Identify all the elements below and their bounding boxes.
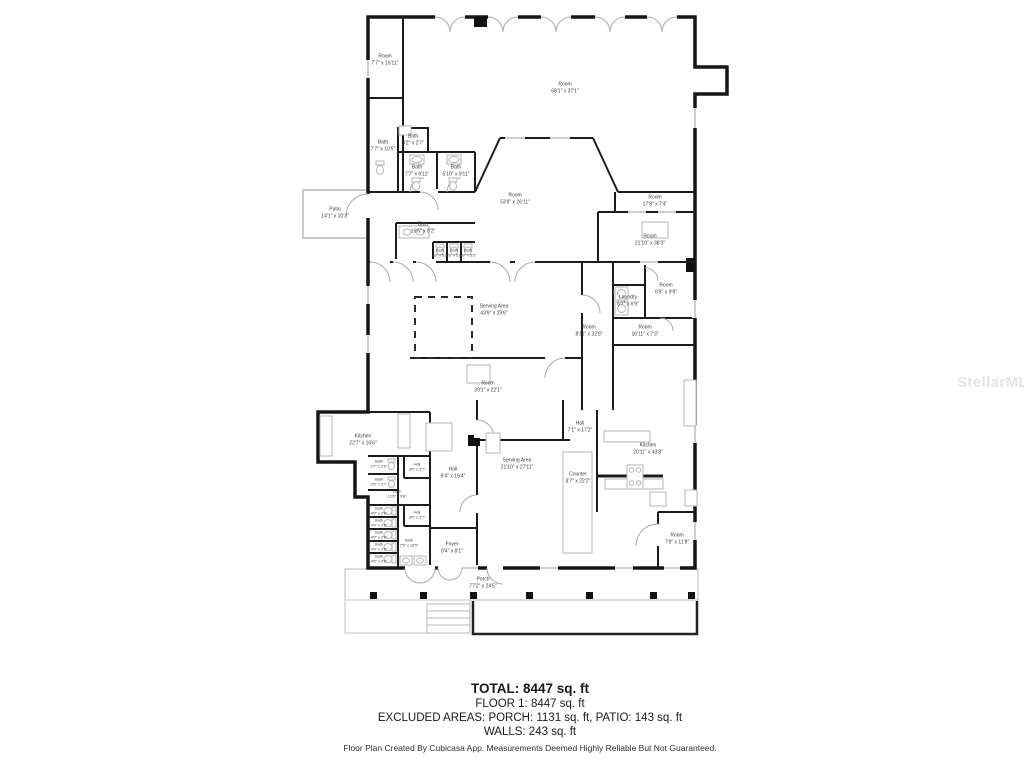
room-dimensions: 4'9" x 2'6": [371, 535, 388, 540]
room-label: Room17'8" x 7'4": [643, 195, 668, 208]
room-label: Bath7'7" x 9'11": [405, 165, 429, 178]
room-name: Serving Area: [501, 458, 534, 465]
room-dimensions: 8'7" x 22'2": [566, 478, 591, 485]
room-dimensions: 21'10" x 38'3": [635, 240, 665, 247]
room-label: Counter8'7" x 22'2": [566, 472, 591, 485]
room-dimensions: 21'10" x 27'11": [501, 464, 534, 471]
floorplan-page: Room7'7" x 16'11"Room68'1" x 37'1"Bath7'…: [0, 0, 1024, 768]
room-dimensions: 16'6" x 8'2": [411, 228, 436, 235]
room-dimensions: 4'9" x 2'6": [371, 547, 388, 552]
room-labels-layer: Room7'7" x 16'11"Room68'1" x 37'1"Bath7'…: [0, 0, 1024, 768]
room-dimensions: 3'6" x 3'7": [409, 515, 426, 520]
room-label: Kitchen22'7" x 16'6": [349, 434, 376, 447]
room-label: Room21'10" x 38'3": [635, 234, 665, 247]
room-label: Bath4'9" x 2'6": [371, 542, 388, 551]
room-dimensions: 17'8" x 7'4": [643, 201, 668, 208]
room-label: Porch77'2" x 24'5": [469, 577, 496, 590]
room-label: Bath4'9" x 2'6": [371, 518, 388, 527]
room-dimensions: 7'9" x 11'8": [665, 539, 689, 546]
room-label: Bath2'8" x 5'2": [460, 248, 477, 257]
room-label: Room7'7" x 16'11": [371, 54, 398, 67]
room-label: Bath2'6" x 2'7": [371, 477, 388, 486]
room-dimensions: 6'7" x 6'9": [617, 301, 639, 308]
room-dimensions: 22'7" x 16'6": [349, 440, 376, 447]
room-dimensions: 5'10" x 9'11": [442, 171, 469, 178]
room-dimensions: 20'11" x 43'8": [633, 449, 663, 456]
room-label: Hall3'6" x 3'7": [409, 510, 426, 519]
room-label: Bath4'9" x 2'6": [371, 554, 388, 563]
room-dimensions: 77'2" x 24'5": [469, 583, 496, 590]
room-label: Bath5'10" x 9'11": [442, 165, 469, 178]
room-dimensions: 12'6" x 9'8": [388, 494, 407, 499]
room-name: Serving Area: [480, 304, 509, 311]
room-label: Bath3'2" x 2'7": [402, 134, 424, 147]
room-label: Hall3'6" x 3'7": [409, 462, 426, 471]
excluded-areas-text: EXCLUDED AREAS: PORCH: 1131 sq. ft, PATI…: [18, 712, 1024, 724]
room-label: Bath4'9" x 2'6": [371, 506, 388, 515]
room-dimensions: 3'6" x 3'7": [409, 467, 426, 472]
area-summary: TOTAL: 8447 sq. ft FLOOR 1: 8447 sq. ft …: [18, 681, 1024, 740]
room-dimensions: 2'7" x 2'6": [371, 464, 388, 469]
total-area-text: TOTAL: 8447 sq. ft: [18, 681, 1024, 696]
room-label: Laundry6'7" x 6'9": [617, 295, 639, 308]
room-dimensions: 3'2" x 2'7": [402, 140, 424, 147]
room-dimensions: 4'9" x 2'6": [371, 559, 388, 564]
room-label: Room68'1" x 37'1": [551, 82, 578, 95]
room-label: Bath7'7" x 10'5": [371, 140, 396, 153]
room-dimensions: 39'1" x 22'1": [474, 387, 501, 394]
room-label: Bath12'6" x 9'8": [388, 489, 407, 498]
room-label: Bath2'7" x 2'6": [371, 459, 388, 468]
room-label: Room16'11" x 7'3": [631, 325, 658, 338]
room-label: Kitchen20'11" x 43'8": [633, 443, 663, 456]
room-dimensions: 2'8" x 5'2": [460, 253, 477, 258]
room-label: Room6'9" x 9'9": [655, 283, 677, 296]
room-label: Room53'9" x 26'11": [500, 193, 530, 206]
room-dimensions: 7'7" x 10'5": [371, 146, 396, 153]
room-dimensions: 4'9" x 2'6": [371, 511, 388, 516]
room-dimensions: 43'9" x 29'6": [480, 310, 509, 317]
room-label: Bath16'6" x 8'2": [411, 222, 436, 235]
floor1-area-text: FLOOR 1: 8447 sq. ft: [18, 698, 1024, 710]
room-label: Serving Area43'9" x 29'6": [480, 304, 509, 317]
room-dimensions: 68'1" x 37'1": [551, 88, 578, 95]
room-label: Serving Area21'10" x 27'11": [501, 458, 534, 471]
walls-area-text: WALLS: 243 sq. ft: [18, 726, 1024, 738]
room-dimensions: 2'6" x 2'7": [371, 482, 388, 487]
room-dimensions: 7'5" x 13'5": [400, 543, 419, 548]
room-dimensions: 7'1" x 17'2": [568, 427, 593, 434]
room-label: Hall8'4" x 15'4": [441, 467, 466, 480]
room-dimensions: 53'9" x 26'11": [500, 199, 530, 206]
mls-watermark: StellarMLS: [957, 374, 1024, 391]
room-dimensions: 4'9" x 2'6": [371, 523, 388, 528]
room-label: Room8'11" x 32'8": [575, 325, 602, 338]
room-dimensions: 14'1" x 10'3": [321, 213, 348, 220]
room-dimensions: 7'7" x 9'11": [405, 171, 429, 178]
room-label: Bath4'9" x 2'6": [371, 530, 388, 539]
room-name: Laundry: [617, 295, 639, 302]
room-label: Bath7'5" x 13'5": [400, 538, 419, 547]
room-label: Room7'9" x 11'8": [665, 533, 689, 546]
disclaimer-text: Floor Plan Created By Cubicasa App. Meas…: [18, 743, 1024, 753]
room-dimensions: 8'4" x 15'4": [441, 473, 466, 480]
room-label: Foyer8'4" x 8'1": [441, 542, 463, 555]
room-label: Hall7'1" x 17'2": [568, 421, 593, 434]
room-label: Room39'1" x 22'1": [474, 381, 501, 394]
room-name: Counter: [566, 472, 591, 479]
room-dimensions: 7'7" x 16'11": [371, 60, 398, 67]
room-dimensions: 6'9" x 9'9": [655, 289, 677, 296]
room-dimensions: 8'11" x 32'8": [575, 331, 602, 338]
room-dimensions: 8'4" x 8'1": [441, 548, 463, 555]
room-label: Patio14'1" x 10'3": [321, 207, 348, 220]
room-dimensions: 16'11" x 7'3": [631, 331, 658, 338]
